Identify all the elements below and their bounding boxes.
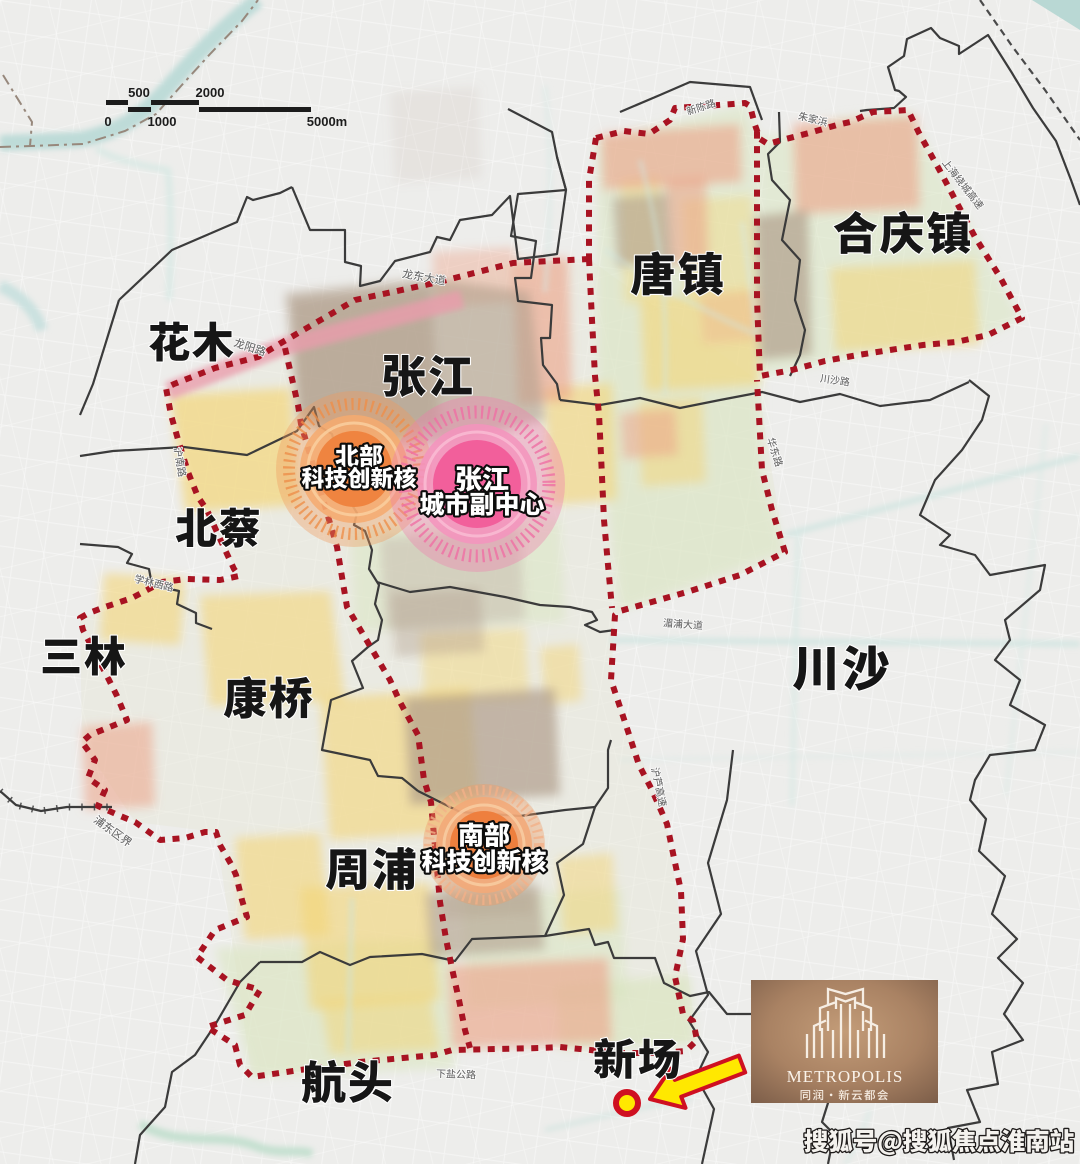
svg-text:METROPOLIS: METROPOLIS bbox=[787, 1067, 904, 1086]
svg-text:0: 0 bbox=[104, 114, 111, 129]
svg-text:2000: 2000 bbox=[196, 85, 225, 100]
svg-text:5000m: 5000m bbox=[307, 114, 347, 129]
svg-text:1000: 1000 bbox=[148, 114, 177, 129]
svg-text:500: 500 bbox=[128, 85, 150, 100]
